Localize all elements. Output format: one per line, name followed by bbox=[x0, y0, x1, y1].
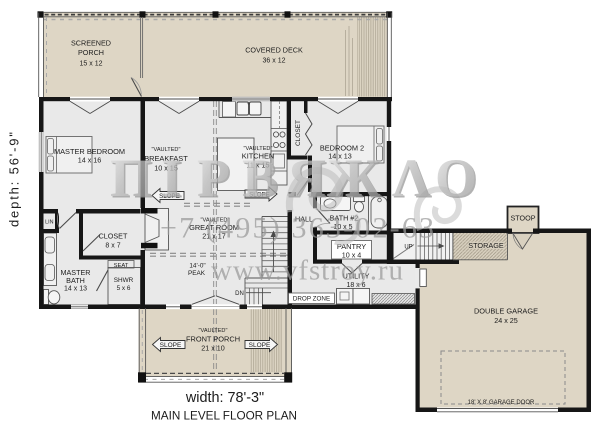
svg-text:CLOSET: CLOSET bbox=[99, 232, 128, 241]
svg-text:О: О bbox=[435, 148, 477, 208]
svg-text:UP: UP bbox=[404, 244, 412, 250]
svg-text:В: В bbox=[242, 148, 278, 208]
svg-text:CLOSET: CLOSET bbox=[295, 120, 302, 146]
svg-text:І: І bbox=[161, 148, 182, 208]
svg-text:COVERED DECK: COVERED DECK bbox=[245, 46, 303, 55]
svg-text:Я: Я bbox=[287, 148, 326, 208]
svg-text:depth: 56'-9": depth: 56'-9" bbox=[7, 132, 22, 227]
svg-text:SHWR: SHWR bbox=[114, 277, 134, 284]
svg-text:18' X 8' GARAGE DOOR: 18' X 8' GARAGE DOOR bbox=[468, 400, 535, 406]
svg-text:15 x 12: 15 x 12 bbox=[80, 61, 103, 68]
svg-text:П: П bbox=[110, 148, 152, 208]
svg-text:14'-0": 14'-0" bbox=[189, 263, 205, 270]
svg-text:DOUBLE GARAGE: DOUBLE GARAGE bbox=[474, 307, 538, 316]
svg-text:8 x 7: 8 x 7 bbox=[105, 243, 120, 250]
svg-text:www.vfstroy.ru: www.vfstroy.ru bbox=[211, 255, 403, 287]
svg-text:PEAK: PEAK bbox=[188, 270, 206, 277]
svg-text:Ж: Ж bbox=[327, 148, 381, 208]
svg-text:DN: DN bbox=[235, 291, 244, 297]
svg-text:MAIN LEVEL FLOOR PLAN: MAIN LEVEL FLOOR PLAN bbox=[151, 409, 297, 423]
svg-text:FRONT PORCH: FRONT PORCH bbox=[186, 335, 240, 344]
svg-text:SEAT: SEAT bbox=[114, 263, 129, 269]
svg-text:24 x 25: 24 x 25 bbox=[494, 316, 518, 325]
svg-text:Р: Р bbox=[197, 148, 230, 208]
svg-text:SLOPE: SLOPE bbox=[249, 342, 271, 349]
svg-text:PORCH: PORCH bbox=[78, 48, 104, 57]
svg-text:Λ: Λ bbox=[392, 148, 431, 208]
svg-text:"VAULTED": "VAULTED" bbox=[199, 328, 228, 334]
svg-text:STORAGE: STORAGE bbox=[468, 241, 504, 250]
svg-text:5 x 6: 5 x 6 bbox=[117, 285, 131, 292]
svg-text:SLOPE: SLOPE bbox=[160, 342, 182, 349]
svg-text:SCREENED: SCREENED bbox=[71, 39, 111, 48]
svg-text:DROP ZONE: DROP ZONE bbox=[293, 296, 330, 303]
svg-text:14 x 13: 14 x 13 bbox=[64, 286, 87, 293]
svg-text:36 x 12: 36 x 12 bbox=[263, 58, 286, 65]
svg-text:width: 78'-3": width: 78'-3" bbox=[185, 390, 264, 406]
svg-text:LIN: LIN bbox=[45, 220, 53, 226]
svg-text:+7 (495) 363-02-63: +7 (495) 363-02-63 bbox=[160, 212, 434, 245]
svg-text:BATH: BATH bbox=[66, 276, 85, 285]
svg-text:STOOP: STOOP bbox=[510, 214, 535, 223]
svg-text:21 x 10: 21 x 10 bbox=[201, 344, 225, 353]
svg-text:14 x 16: 14 x 16 bbox=[78, 156, 102, 165]
